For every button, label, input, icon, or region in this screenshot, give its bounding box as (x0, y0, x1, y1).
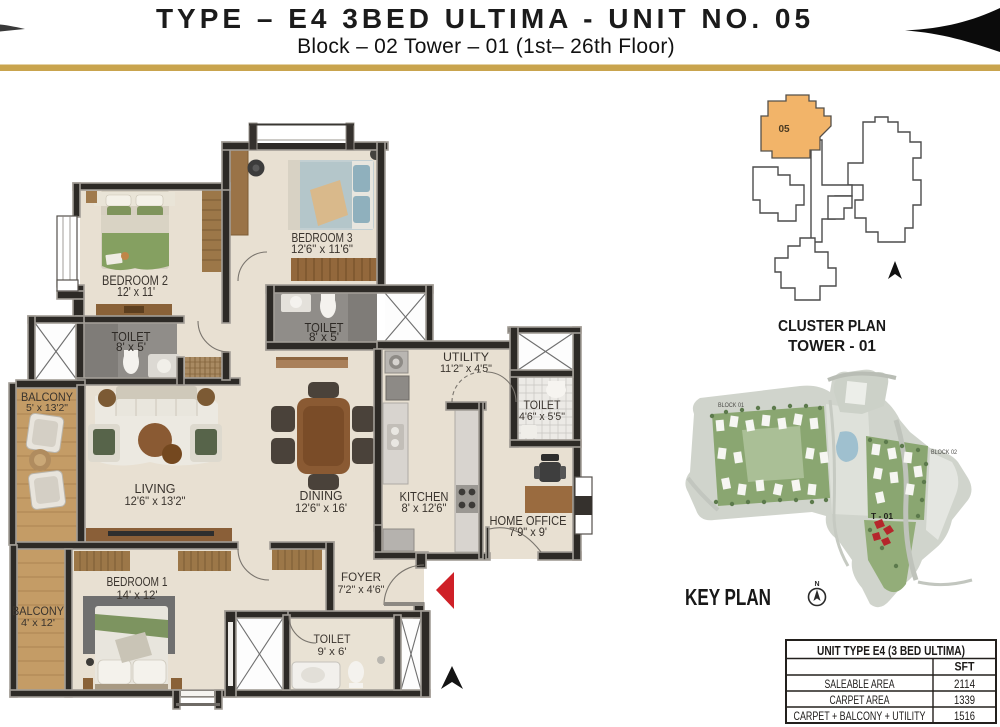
svg-text:4' x 12': 4' x 12' (21, 617, 55, 629)
svg-text:BLOCK 01: BLOCK 01 (718, 402, 744, 409)
svg-text:T - 01: T - 01 (871, 511, 893, 521)
svg-text:7'2" x 4'6": 7'2" x 4'6" (338, 584, 385, 596)
svg-text:12'6" x 11'6": 12'6" x 11'6" (291, 242, 353, 256)
svg-text:KITCHEN: KITCHEN (400, 490, 449, 504)
svg-text:FOYER: FOYER (341, 570, 381, 584)
svg-text:CARPET AREA: CARPET AREA (830, 695, 890, 707)
svg-text:8' x 12'6": 8' x 12'6" (402, 503, 447, 515)
svg-text:12' x 11': 12' x 11' (117, 285, 155, 299)
svg-text:Block – 02 Tower – 01 (1st–: Block – 02 Tower – 01 (1st– 26th Floor) (297, 35, 675, 58)
svg-text:05: 05 (778, 124, 790, 135)
svg-text:14' x 12': 14' x 12' (117, 588, 158, 602)
svg-text:BLOCK 02: BLOCK 02 (931, 449, 957, 456)
svg-text:8' x 5': 8' x 5' (309, 332, 339, 344)
svg-text:1339: 1339 (954, 695, 975, 707)
svg-text:TOILET: TOILET (524, 398, 562, 412)
svg-text:1516: 1516 (954, 711, 975, 723)
svg-text:12'6" x 13'2": 12'6" x 13'2" (125, 494, 186, 508)
svg-text:HOME OFFICE: HOME OFFICE (490, 514, 567, 528)
svg-text:9' x 6': 9' x 6' (318, 646, 347, 658)
svg-text:TOWER - 01: TOWER - 01 (788, 338, 876, 355)
svg-text:8' x 5': 8' x 5' (116, 342, 146, 354)
svg-text:12'6" x 16': 12'6" x 16' (295, 501, 347, 515)
svg-text:SFT: SFT (955, 660, 976, 674)
svg-text:BEDROOM 1: BEDROOM 1 (107, 574, 168, 589)
svg-text:7'9" x 9': 7'9" x 9' (509, 527, 547, 539)
svg-text:N: N (814, 581, 819, 588)
svg-text:CARPET + BALCONY + UTILITY: CARPET + BALCONY + UTILITY (794, 711, 926, 723)
svg-text:TOILET: TOILET (314, 632, 352, 646)
svg-text:4'6" x 5'5": 4'6" x 5'5" (519, 411, 565, 423)
svg-text:TYPE – E4 3BED ULTIMA - UNIT N: TYPE – E4 3BED ULTIMA - UNIT NO. 05 (156, 3, 814, 34)
svg-text:CLUSTER PLAN: CLUSTER PLAN (778, 318, 886, 335)
svg-text:UNIT TYPE E4 (3 BED ULTIMA): UNIT TYPE E4 (3 BED ULTIMA) (817, 644, 965, 658)
svg-text:5' x 13'2": 5' x 13'2" (26, 402, 68, 414)
svg-text:11'2" x 4'5": 11'2" x 4'5" (440, 363, 492, 375)
svg-text:UTILITY: UTILITY (443, 350, 489, 364)
svg-text:KEY PLAN: KEY PLAN (685, 584, 771, 610)
svg-text:2114: 2114 (954, 679, 976, 691)
svg-text:SALEABLE AREA: SALEABLE AREA (825, 679, 895, 691)
